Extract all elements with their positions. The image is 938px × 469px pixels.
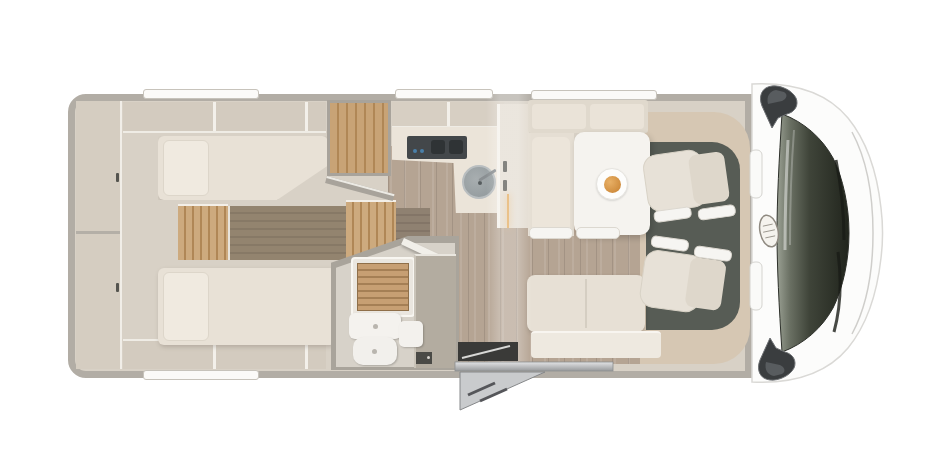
- cab-front-overlay: [0, 0, 938, 469]
- motorhome-floorplan: [0, 0, 938, 469]
- entry-step-rail: [455, 362, 613, 371]
- cab-window-slot: [750, 262, 762, 310]
- cab-window-slot: [750, 150, 762, 198]
